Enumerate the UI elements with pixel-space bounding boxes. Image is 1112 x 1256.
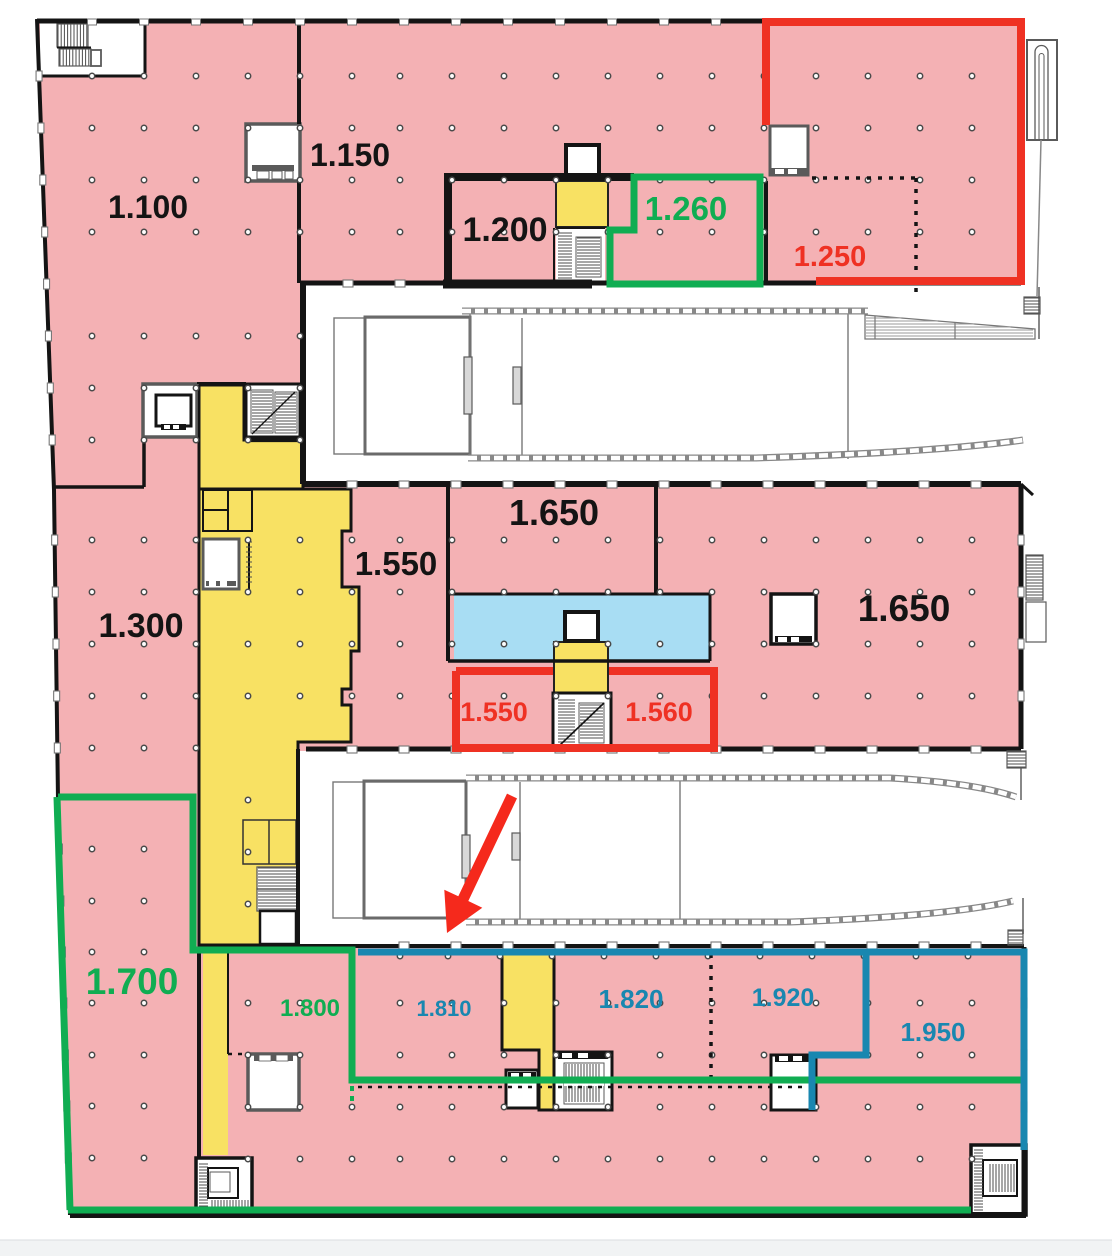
svg-text:1.250: 1.250 [794,241,867,273]
svg-text:1.700: 1.700 [86,961,179,1002]
svg-text:1.200: 1.200 [462,211,547,249]
svg-text:1.810: 1.810 [416,996,471,1021]
svg-text:1.650: 1.650 [858,588,951,629]
svg-text:1.150: 1.150 [310,137,390,173]
svg-text:1.550: 1.550 [460,697,528,727]
svg-text:1.800: 1.800 [280,995,340,1022]
svg-text:1.560: 1.560 [625,697,693,727]
svg-text:1.820: 1.820 [598,984,663,1014]
svg-text:1.650: 1.650 [509,492,599,533]
svg-text:1.950: 1.950 [900,1017,965,1047]
svg-text:1.920: 1.920 [752,984,815,1012]
svg-text:1.260: 1.260 [645,190,728,227]
svg-text:1.300: 1.300 [98,607,183,645]
svg-text:1.100: 1.100 [108,189,188,225]
svg-text:1.550: 1.550 [355,545,438,582]
